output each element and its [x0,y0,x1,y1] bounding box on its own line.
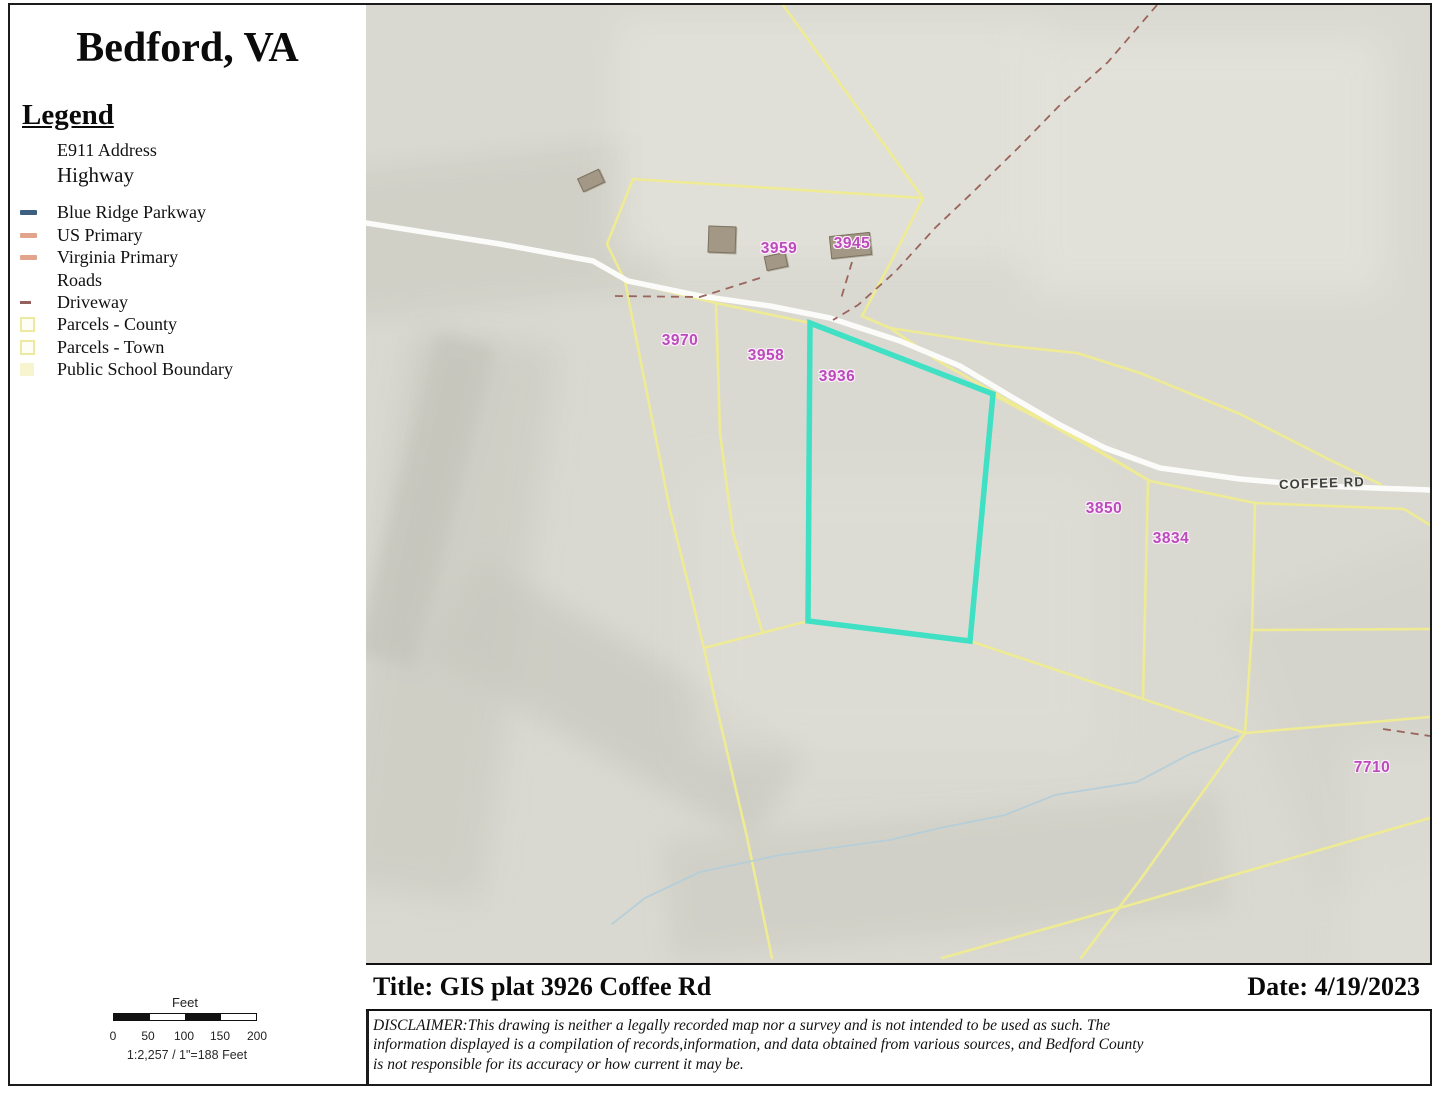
legend-item-label: Roads [57,270,102,291]
title-bar: Title: GIS plat 3926 Coffee Rd Date: 4/1… [366,963,1432,1011]
disclaimer-text: DISCLAIMER:This drawing is neither a leg… [373,1016,1423,1074]
parcel-label: 3834 [1153,530,1189,548]
legend-item-label: US Primary [57,225,143,246]
legend-item-label: Driveway [57,292,128,313]
map-title-label: Title: GIS plat 3926 Coffee Rd [373,972,711,1002]
legend-item-label: Highway [57,163,134,188]
scale-ratio-label: 1:2,257 / 1"=188 Feet [97,1048,277,1062]
driveway-line-icon [20,301,46,304]
scale-bar [113,1013,257,1021]
parcel-label: 3959 [761,240,797,258]
legend-item-label: Parcels - Town [57,337,164,358]
legend-item-us-primary: US Primary [20,224,143,247]
parcel-label: 3958 [748,347,784,365]
map-date-label: Date: 4/19/2023 [1247,972,1420,1002]
parcel-label: 3850 [1086,500,1122,518]
parcel-town-square-icon [20,340,46,355]
map-canvas: 3959 3945 3970 3958 3936 3850 3834 7710 … [366,5,1430,963]
building [708,226,737,254]
legend-item-highway: Highway [20,164,134,187]
legend-item-label: Parcels - County [57,314,177,335]
disclaimer-line: is not responsible for its accuracy or h… [373,1055,1423,1074]
parcel-label: 7710 [1354,759,1390,777]
legend-item-public-school-boundary: Public School Boundary [20,358,233,381]
legend-item-driveway: Driveway [20,291,128,314]
legend-item-label: Virginia Primary [57,247,178,268]
legend-title: Legend [22,99,114,132]
blue-ridge-parkway-line-icon [20,210,46,215]
scale-tick: 150 [210,1029,230,1043]
legend-item-roads: Roads [20,269,102,292]
parcel-label: 3945 [834,235,870,253]
legend-item-blue-ridge-parkway: Blue Ridge Parkway [20,201,206,224]
virginia-primary-line-icon [20,255,46,260]
stream-line [612,736,1238,924]
parcel-county-square-icon [20,317,46,332]
legend-item-label: E911 Address [57,140,157,161]
page-title: Bedford, VA [8,24,367,72]
disclaimer-line: DISCLAIMER:This drawing is neither a leg… [373,1016,1423,1035]
scale-tick: 50 [141,1029,154,1043]
scale-unit-label: Feet [113,995,257,1010]
legend-item-parcels-county: Parcels - County [20,313,177,336]
us-primary-line-icon [20,233,46,238]
scale-tick: 200 [247,1029,267,1043]
map-vector-layer [366,5,1430,963]
driveway-lines [612,5,1430,736]
parcel-label-highlighted: 3936 [819,368,855,386]
legend-item-e911-address: E911 Address [20,139,157,162]
legend-item-virginia-primary: Virginia Primary [20,246,178,269]
legend-item-label: Public School Boundary [57,359,233,380]
gis-plat-page: Bedford, VA Legend E911 Address Highway … [0,0,1438,1095]
road-name-label: COFFEE RD [1279,474,1365,492]
parcel-label: 3970 [662,332,698,350]
legend-item-label: Blue Ridge Parkway [57,202,206,223]
disclaimer-line: information displayed is a compilation o… [373,1035,1423,1054]
school-boundary-fill-icon [20,363,46,376]
scale-tick: 100 [174,1029,194,1043]
scale-tick: 0 [110,1029,117,1043]
legend-item-parcels-town: Parcels - Town [20,336,164,359]
